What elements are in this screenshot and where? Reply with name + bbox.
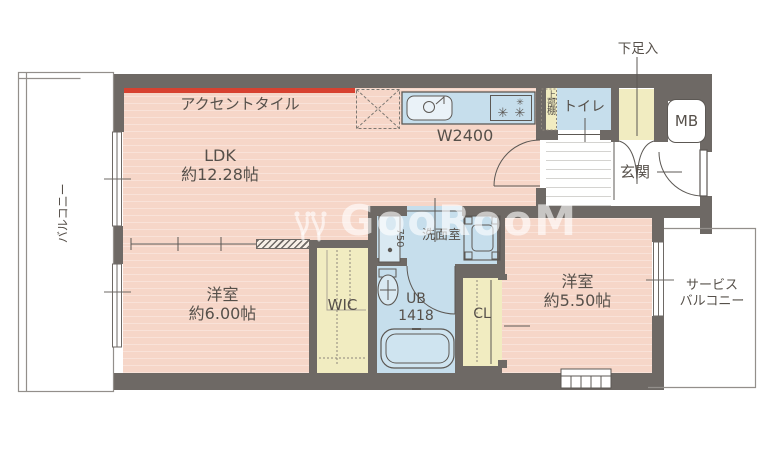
balcony-label: バルコニー — [56, 163, 70, 263]
meter-box-label: MB — [675, 112, 698, 130]
service-balcony-label: サービス バルコニー — [664, 278, 760, 309]
washroom-label: 洗面室 — [422, 228, 461, 244]
wall — [77, 74, 108, 106]
bedroom1-size: 約6.00帖 — [155, 304, 290, 323]
vanity-width-label: 750 — [393, 213, 405, 263]
wall — [495, 206, 712, 218]
bedroom2-size: 約5.50帖 — [510, 291, 645, 310]
wall — [75, 347, 111, 373]
ldk-size: 約12.28帖 — [160, 165, 280, 184]
wall-bottom — [111, 373, 664, 390]
bedroom2-name: 洋室 — [510, 272, 645, 291]
wall — [652, 316, 664, 373]
ldk-label: LDK 約12.28帖 — [160, 146, 280, 184]
wic-label: WIC — [317, 296, 368, 314]
wall — [536, 188, 546, 208]
bedroom1-label: 洋室 約6.00帖 — [155, 285, 290, 323]
wall — [652, 216, 664, 242]
wall-window-mullion — [111, 226, 123, 264]
wall-door-pocket-hatch — [256, 239, 310, 249]
shoe-cabinet-label: 下足入 — [608, 41, 668, 57]
wall — [498, 274, 507, 280]
entrance-label: 玄関 — [620, 163, 650, 181]
wall-top — [106, 74, 712, 88]
floor-plan: MB — [0, 0, 782, 449]
wall — [455, 366, 502, 373]
shoe-cabinet-box — [619, 89, 654, 140]
unit-bath-size: 1418 — [380, 308, 452, 325]
accent-tile-label: アクセントタイル — [170, 95, 310, 113]
ldk-name: LDK — [160, 146, 280, 165]
service-balcony-line2: バルコニー — [664, 294, 760, 310]
unit-bath-label: UB 1418 — [380, 291, 452, 325]
upper-shelf-label: 上部棚 — [542, 90, 557, 130]
bedroom2-label: 洋室 約5.50帖 — [510, 272, 645, 310]
unit-bath-name: UB — [380, 291, 452, 308]
closet-label: CL — [462, 306, 502, 323]
wall — [462, 206, 498, 216]
service-balcony-line1: サービス — [664, 278, 760, 294]
wall — [368, 206, 377, 373]
meter-box: MB — [667, 99, 706, 143]
kitchen-width-label: W2400 — [420, 126, 510, 145]
bedroom1-name: 洋室 — [155, 285, 290, 304]
wall — [309, 244, 317, 373]
toilet-label: トイレ — [556, 99, 612, 116]
wall — [600, 130, 619, 140]
hallway-floor — [546, 140, 611, 206]
wall — [309, 240, 377, 248]
wall — [546, 130, 558, 140]
